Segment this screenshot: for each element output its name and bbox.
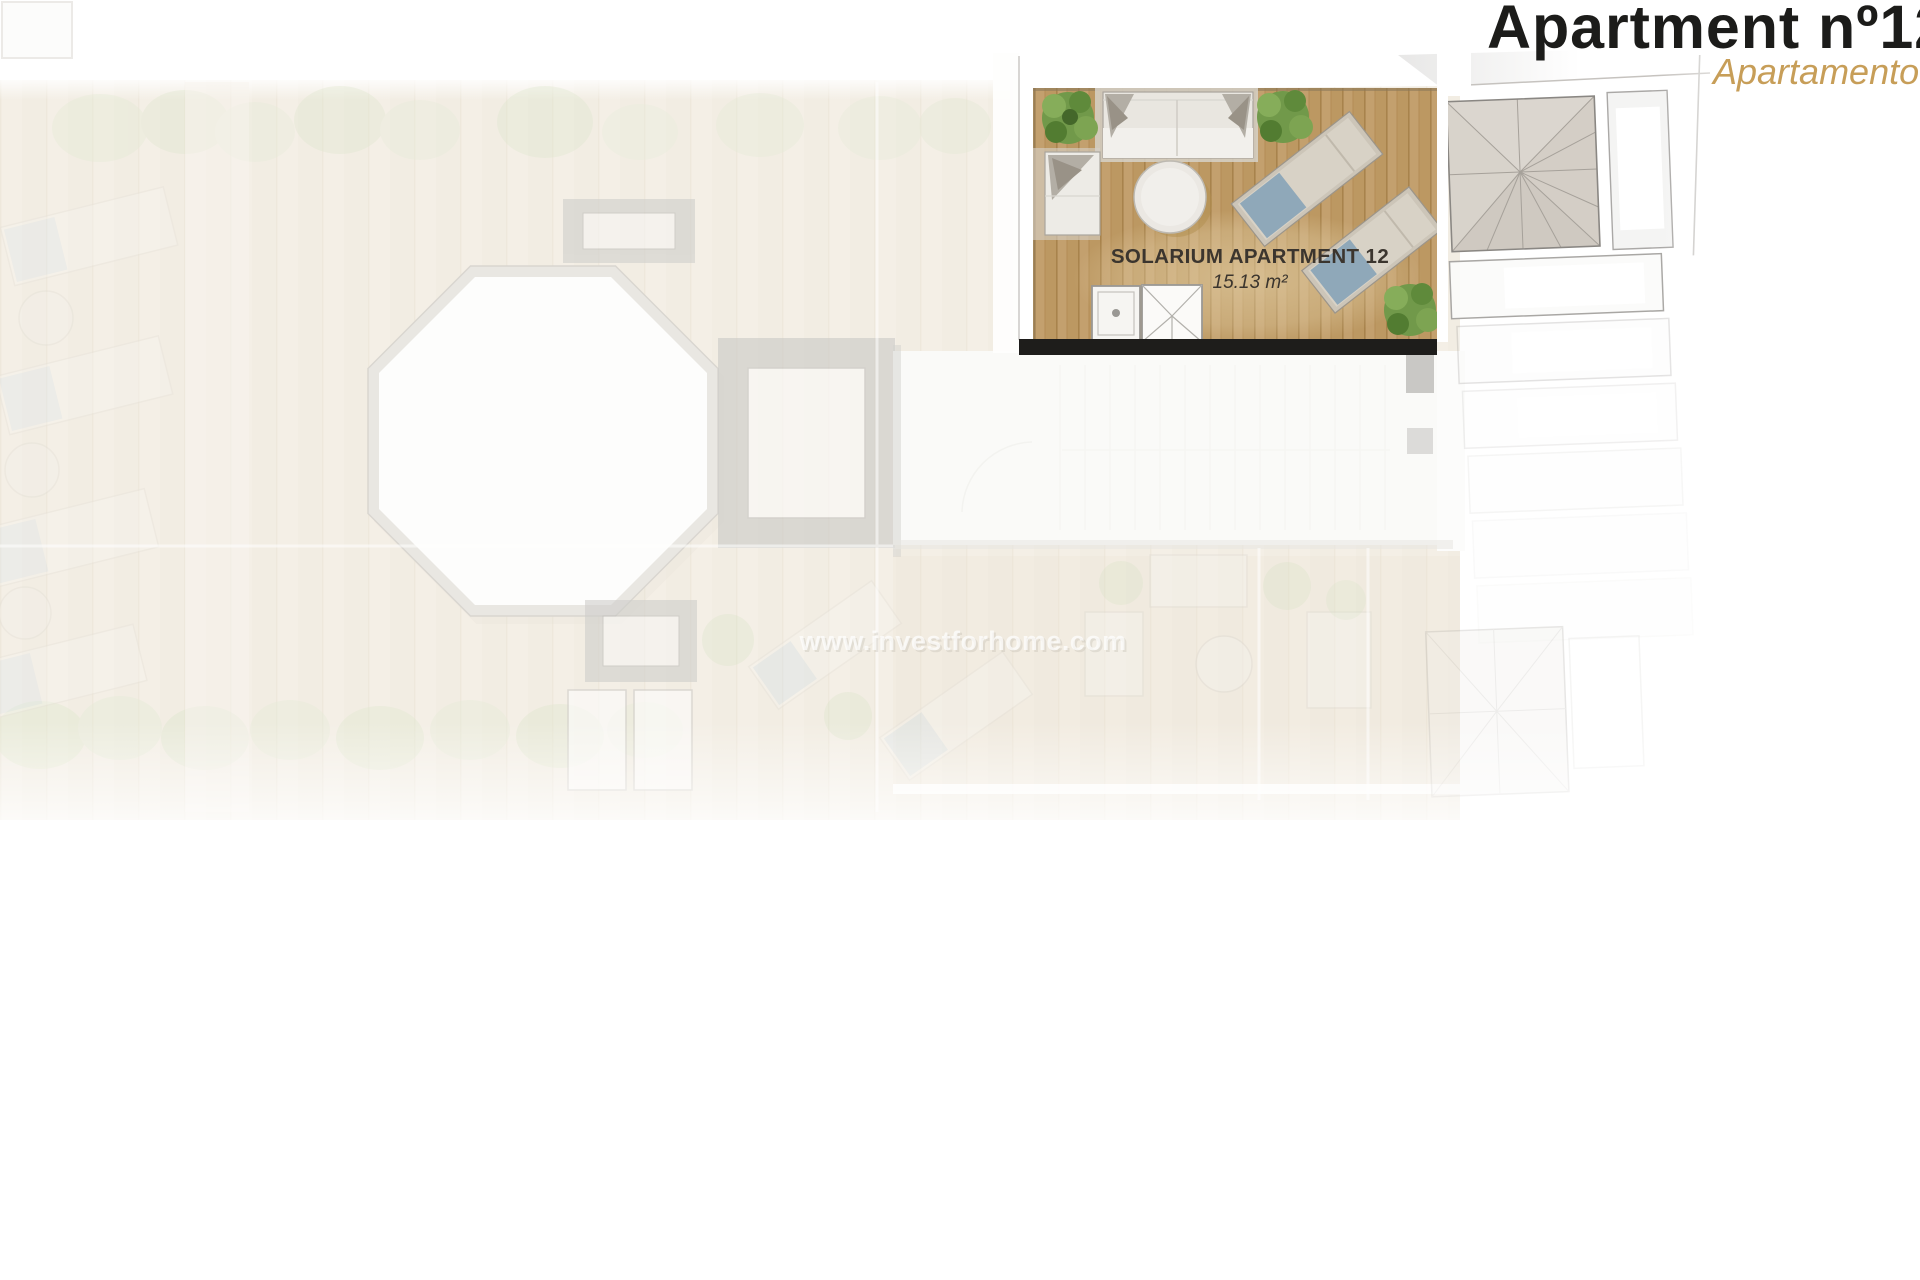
svg-text:SOLARIUM APARTMENT 12: SOLARIUM APARTMENT 12 xyxy=(1111,245,1389,268)
svg-text:15.13 m²: 15.13 m² xyxy=(1213,272,1289,293)
svg-text:Apartamento nº12: Apartamento nº12 xyxy=(1711,51,1920,92)
svg-text:www.investforhome.com: www.investforhome.com xyxy=(799,626,1127,656)
